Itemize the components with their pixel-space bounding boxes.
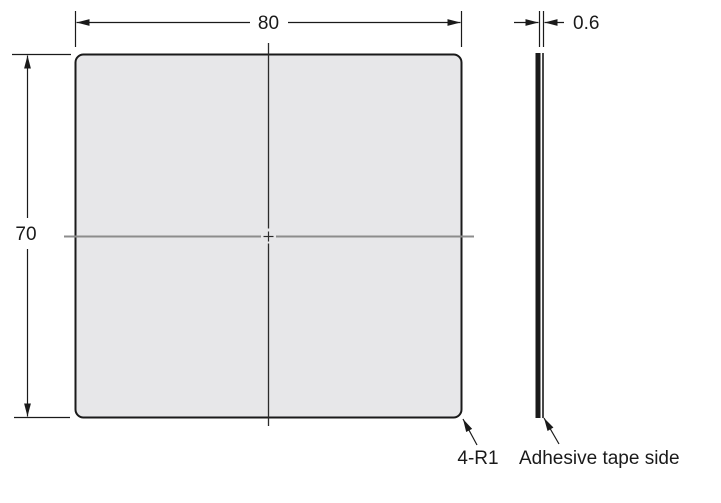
height-dimension-label: 70 bbox=[15, 224, 36, 245]
adhesive-side-label: Adhesive tape side bbox=[519, 448, 680, 469]
drawing-svg: 80 70 0.6 4-R1 Adhesive tape side bbox=[0, 0, 721, 503]
thickness-dimension-label: 0.6 bbox=[573, 13, 599, 34]
thickness-dimension bbox=[514, 11, 564, 47]
technical-drawing: 80 70 0.6 4-R1 Adhesive tape side bbox=[0, 0, 721, 503]
front-view bbox=[64, 43, 474, 426]
adhesive-side-leader bbox=[544, 418, 559, 444]
plate-side-profile bbox=[536, 53, 541, 418]
side-view bbox=[536, 53, 544, 418]
corner-radius-leader bbox=[463, 419, 477, 445]
corner-radius-label: 4-R1 bbox=[457, 448, 498, 469]
width-dimension-label: 80 bbox=[258, 13, 279, 34]
